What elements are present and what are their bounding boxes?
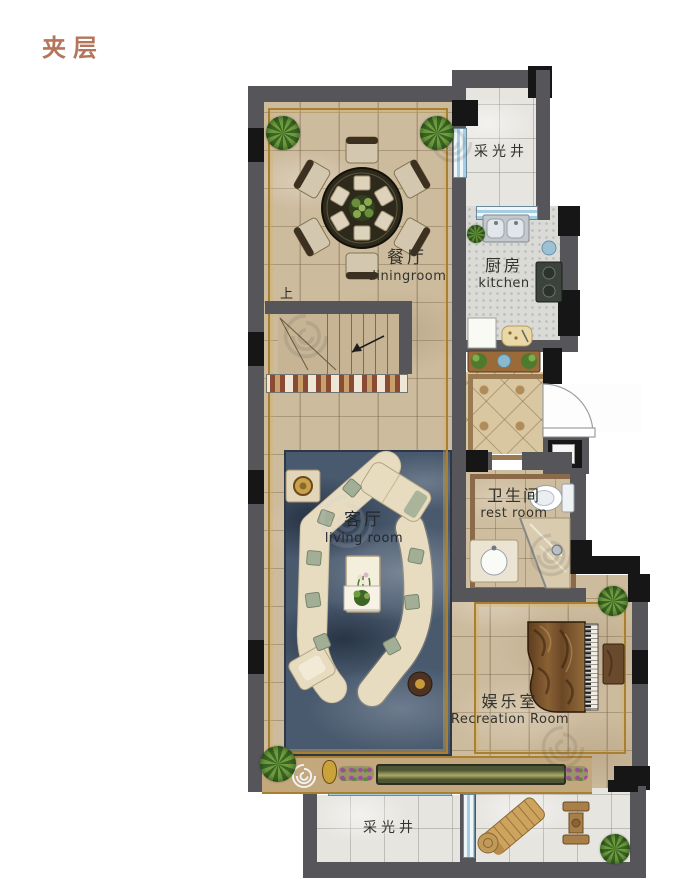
wall-column [248,332,264,366]
gold-trim-dining-living [268,108,448,754]
window-kitchen [476,206,538,220]
wall-column [248,470,264,504]
floorplan-page: 夹层 [0,0,690,895]
wall-column [248,128,264,162]
wall-column [632,650,648,684]
wall-lightwell-right [536,70,550,220]
vase [322,760,337,784]
stairs-treads [316,314,399,374]
plant-icon [600,834,630,864]
plant-icon [467,225,485,243]
wall-bath-bottom [452,588,586,602]
wall-column [628,574,650,602]
wall-column [466,450,488,472]
wall-stairs-right [399,301,412,374]
stairs-balustrade [266,374,408,393]
wall-column [558,290,580,336]
flower-cluster [338,766,374,781]
stairs-up-label: 上 [280,283,293,302]
wood-frame-hallway [468,374,550,460]
wall-column [248,640,264,674]
room-label-living: 客厅 living room [302,510,426,548]
flower-cluster [564,766,588,781]
wall-column [608,780,638,792]
dining-label-en: diningroom [352,269,462,285]
bowl-icon [498,355,511,368]
plant-icon [266,116,300,150]
wall-terrace-right [630,786,646,878]
wall-recreation-top [576,556,640,574]
wall-corner-block [452,100,478,126]
wall-stairs-top [265,301,412,314]
room-label-lightwell-top: 采光井 [464,144,538,162]
page-title: 夹层 [42,28,104,63]
console-table [468,351,540,372]
long-planter [376,764,566,785]
wall-left-outer [248,86,264,792]
room-label-lightwell-bottom: 采光井 [338,820,442,838]
stairs-landing [278,314,318,374]
plant-icon [598,586,628,616]
dining-label-zh: 餐厅 [352,248,462,269]
wall-top [248,86,466,102]
wall-entry-jamb [543,348,562,384]
window-divider [463,794,475,858]
room-label-dining: 餐厅 diningroom [352,248,462,286]
wall-column [558,206,580,236]
room-label-kitchen: 厨房 kitchen [470,256,538,292]
entry-area [543,384,641,432]
room-label-recreation: 娱乐室 Recreation Room [446,692,574,728]
plant-icon [260,746,296,782]
wall-bath-top [522,452,572,470]
gold-trim-recreation [474,602,626,754]
wall-bottom-outer [303,862,644,878]
plant-icon [420,116,454,150]
room-label-bathroom: 卫生间 rest room [462,486,566,522]
